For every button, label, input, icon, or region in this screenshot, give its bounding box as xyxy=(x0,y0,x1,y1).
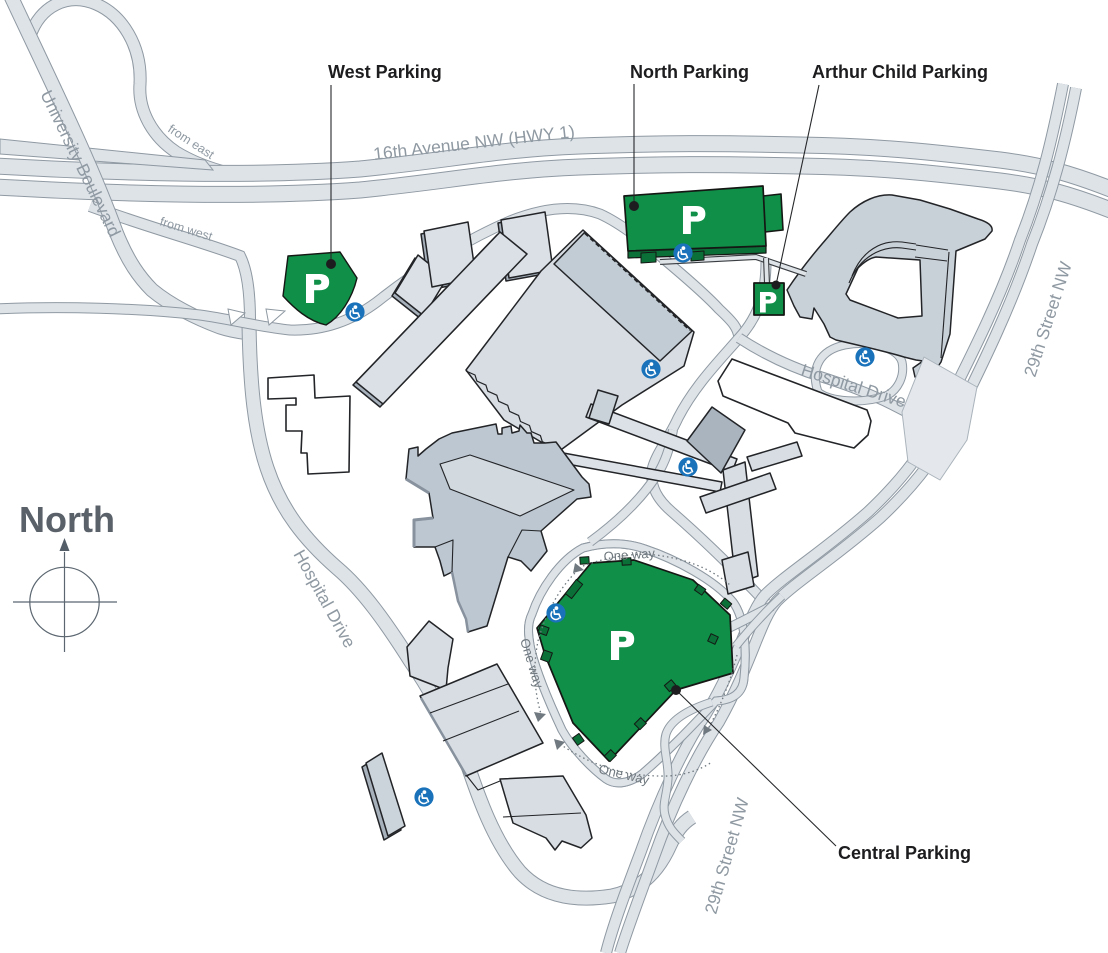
svg-text:29th Street NW: 29th Street NW xyxy=(701,795,753,916)
svg-text:North Parking: North Parking xyxy=(630,62,749,82)
svg-text:Arthur Child Parking: Arthur Child Parking xyxy=(812,62,988,82)
svg-text:29th Street NW: 29th Street NW xyxy=(1020,259,1076,379)
svg-text:North: North xyxy=(19,499,115,540)
svg-text:Central Parking: Central Parking xyxy=(838,843,971,863)
svg-text:West Parking: West Parking xyxy=(328,62,442,82)
svg-text:One way: One way xyxy=(603,545,656,564)
